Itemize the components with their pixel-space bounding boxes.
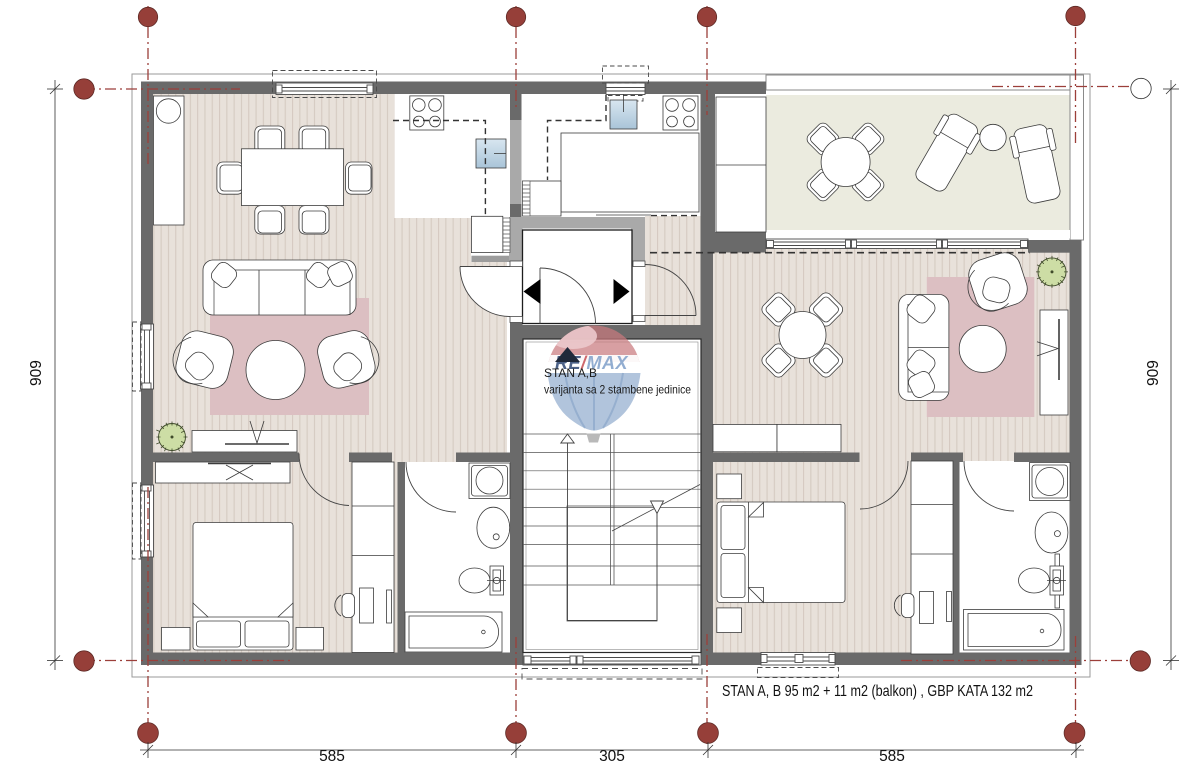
svg-text:909: 909 [28, 360, 45, 386]
svg-text:STAN A, B 95 m2 + 11 m2 (balk: STAN A, B 95 m2 + 11 m2 (balkon) , GBP K… [722, 683, 1033, 700]
svg-text:585: 585 [879, 748, 905, 765]
svg-text:STAN A,B: STAN A,B [544, 366, 597, 380]
svg-text:305: 305 [599, 748, 625, 765]
svg-text:909: 909 [1145, 360, 1162, 386]
svg-text:varijanta sa 2 stambene jedini: varijanta sa 2 stambene jedinice [544, 383, 691, 397]
svg-text:585: 585 [319, 748, 345, 765]
